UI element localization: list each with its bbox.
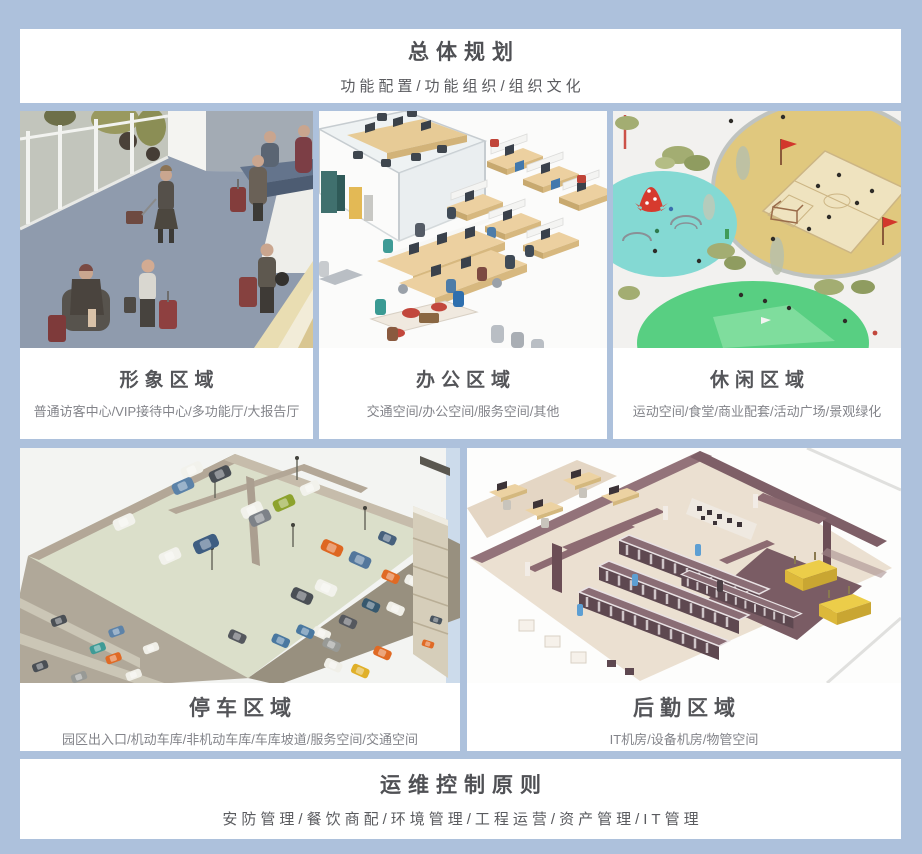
page-title: 总体规划 xyxy=(401,36,520,66)
parking-garage-illustration xyxy=(20,448,460,683)
zone-subtitle: 交通空间/办公空间/服务空间/其他 xyxy=(319,401,607,420)
zone-card-image-area: 形象区域 普通访客中心/VIP接待中心/多功能厅/大报告厅 xyxy=(20,111,313,439)
zone-caption: 办公区域 交通空间/办公空间/服务空间/其他 xyxy=(319,348,607,439)
zone-title: 形象区域 xyxy=(20,365,313,392)
zone-caption: 停车区域 园区出入口/机动车库/非机动车库/车库坡道/服务空间/交通空间 xyxy=(20,683,460,751)
zone-title: 休闲区域 xyxy=(613,365,901,392)
zone-caption: 形象区域 普通访客中心/VIP接待中心/多功能厅/大报告厅 xyxy=(20,348,313,439)
server-room-image xyxy=(467,448,901,683)
zone-card-parking-area: 停车区域 园区出入口/机动车库/非机动车库/车库坡道/服务空间/交通空间 xyxy=(20,448,460,751)
footer-title: 运维控制原则 xyxy=(373,769,548,799)
zone-title: 停车区域 xyxy=(20,692,460,722)
zone-card-office-area: 办公区域 交通空间/办公空间/服务空间/其他 xyxy=(319,111,607,439)
park-sports-image xyxy=(613,111,901,348)
park-sports-illustration xyxy=(613,111,901,348)
footer-panel: 运维控制原则 安防管理/餐饮商配/环境管理/工程运营/资产管理/IT管理 xyxy=(20,759,901,839)
zone-caption: 后勤区域 IT机房/设备机房/物管空间 xyxy=(467,683,901,751)
parking-garage-image xyxy=(20,448,460,683)
zone-subtitle: 普通访客中心/VIP接待中心/多功能厅/大报告厅 xyxy=(20,401,313,420)
reception-lobby-illustration xyxy=(20,111,313,348)
zone-subtitle: IT机房/设备机房/物管空间 xyxy=(467,729,901,748)
zone-card-logistics-area: 后勤区域 IT机房/设备机房/物管空间 xyxy=(467,448,901,751)
footer-subtitle: 安防管理/餐饮商配/环境管理/工程运营/资产管理/IT管理 xyxy=(218,808,702,829)
header-panel: 总体规划 功能配置/功能组织/组织文化 xyxy=(20,29,901,103)
zone-row-top: 形象区域 普通访客中心/VIP接待中心/多功能厅/大报告厅 xyxy=(20,111,901,439)
zone-title: 后勤区域 xyxy=(467,692,901,722)
zone-title: 办公区域 xyxy=(319,365,607,392)
zone-card-leisure-area: 休闲区域 运动空间/食堂/商业配套/活动广场/景观绿化 xyxy=(613,111,901,439)
reception-lobby-image xyxy=(20,111,313,348)
zone-caption: 休闲区域 运动空间/食堂/商业配套/活动广场/景观绿化 xyxy=(613,348,901,439)
open-office-illustration xyxy=(319,111,607,348)
zone-row-bottom: 停车区域 园区出入口/机动车库/非机动车库/车库坡道/服务空间/交通空间 xyxy=(20,448,901,751)
zone-subtitle: 运动空间/食堂/商业配套/活动广场/景观绿化 xyxy=(613,401,901,420)
open-office-image xyxy=(319,111,607,348)
page-subtitle: 功能配置/功能组织/组织文化 xyxy=(336,75,584,96)
planning-infographic: 总体规划 功能配置/功能组织/组织文化 xyxy=(0,0,922,854)
server-room-illustration xyxy=(467,448,901,683)
zone-subtitle: 园区出入口/机动车库/非机动车库/车库坡道/服务空间/交通空间 xyxy=(20,729,460,748)
